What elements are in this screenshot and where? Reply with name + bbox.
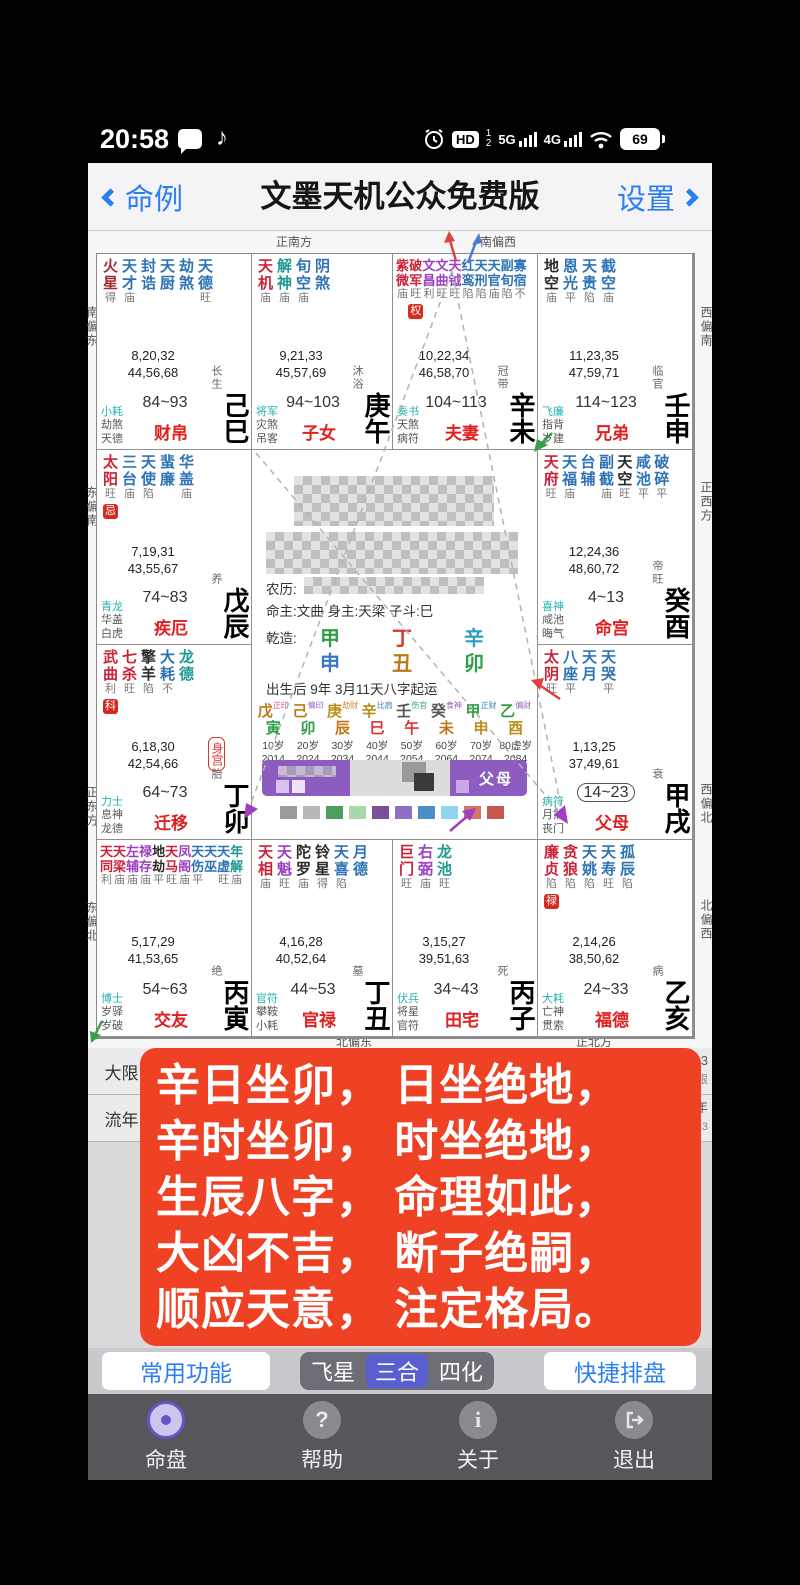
age-numbers: 12,24,3648,60,72: [538, 543, 650, 577]
age-numbers: 10,22,3446,58,70: [393, 347, 495, 381]
star-天德: 天德旺: [197, 259, 214, 305]
star-list: 太阳旺忌三台庙天使陷蜚廉华盖庙: [102, 455, 229, 519]
star-天同: 天同利: [100, 845, 113, 887]
brightness-label: 陷: [476, 288, 487, 301]
stem-branch-label: 辛未: [508, 392, 534, 444]
brightness-label: 陷: [336, 878, 347, 891]
decade-range: 54~63: [125, 981, 205, 999]
brightness-label: 平: [565, 683, 576, 696]
nav-exit[interactable]: 退出: [556, 1394, 712, 1480]
life-stage-label: 帝旺: [649, 560, 665, 586]
life-stage-label: 衰: [649, 768, 665, 781]
age-numbers: 11,23,3547,59,71: [538, 347, 650, 381]
stem-branch-label: 壬申: [663, 392, 689, 444]
star-天厨: 天厨: [159, 259, 176, 305]
common-functions-button[interactable]: 常用功能: [102, 1352, 270, 1390]
star-擎羊: 擎羊陷: [140, 650, 157, 714]
overlay-text-line: 辛日坐卯， 日坐绝地，: [156, 1058, 695, 1114]
star-list: 火星得天才庙封诰天厨劫煞天德旺: [102, 259, 229, 305]
bazi-label: 乾造:: [266, 627, 297, 647]
tab-feixing[interactable]: 飞星: [302, 1354, 364, 1388]
star-文曲: 文曲旺: [436, 259, 449, 319]
decade-selector-bar[interactable]: 父母: [262, 760, 527, 796]
life-stage-label: 墓: [349, 965, 365, 978]
star-地劫: 地劫平: [152, 845, 165, 887]
palace-疾厄[interactable]: 太阳旺忌三台庙天使陷蜚廉华盖庙7,19,3143,55,67养戊辰青龙华盖白虎7…: [97, 450, 251, 644]
star-list: 廉贞陷禄贪狼陷天姚陷天寿旺孤辰陷: [543, 845, 670, 909]
direction-label: 北偏西: [698, 899, 715, 941]
stem-branch-label: 庚午: [363, 392, 389, 444]
age-numbers: 9,21,3345,57,69: [252, 347, 350, 381]
star-恩光: 恩光平: [562, 259, 579, 305]
legend-square: [395, 806, 412, 819]
star-天福: 天福庙: [561, 455, 577, 501]
brightness-label: 旺: [279, 878, 290, 891]
brightness-label: 不: [515, 288, 526, 301]
music-note-icon: ♪: [216, 124, 228, 152]
dayun-branch: 未: [429, 717, 464, 738]
star-铃星: 铃星得: [314, 845, 331, 891]
question-icon: ?: [303, 1401, 341, 1439]
alarm-icon: [423, 128, 445, 150]
brightness-label: 庙: [546, 292, 557, 305]
brightness-label: 旺: [619, 488, 630, 501]
legend-square: [418, 806, 435, 819]
brightness-label: 平: [638, 488, 649, 501]
star-解神: 解神庙: [276, 259, 293, 305]
star-list: 紫微庙破军旺权文昌利文曲旺天钺旺红鸾陷天刑陷天官庙副旬陷寡宿不: [396, 259, 517, 319]
brightness-label: 旺: [218, 874, 229, 887]
star-火星: 火星得: [102, 259, 119, 305]
brightness-label: 庙: [397, 288, 408, 301]
brightness-label: 旺: [105, 488, 116, 501]
decade-range: 44~53: [280, 981, 346, 999]
minor-gods: 官符攀鞍小耗: [256, 993, 278, 1034]
star-天巫: 天巫: [204, 845, 217, 887]
nav-label: 关于: [457, 1444, 499, 1474]
decade-range: 14~23: [566, 784, 646, 802]
brightness-label: 旺: [439, 878, 450, 891]
minor-gods: 力士息神龙德: [101, 796, 123, 837]
palace-name: 交友: [137, 1006, 205, 1031]
age-numbers: 4,16,2840,52,64: [252, 933, 350, 967]
direction-label: 正南方: [276, 233, 312, 250]
star-八座: 八座平: [562, 650, 579, 696]
transform-badge: 忌: [103, 504, 118, 519]
pillar-branch: 申: [308, 647, 352, 676]
star-廉贞: 廉贞陷禄: [543, 845, 560, 909]
age-numbers: 1,13,2537,49,61: [538, 738, 650, 772]
palace-name: 兄弟: [578, 419, 646, 444]
star-副截: 副截庙: [598, 455, 614, 501]
brightness-label: 利: [101, 874, 112, 887]
minor-gods: 奏书天煞病符: [397, 406, 419, 447]
annotation-overlay: 辛日坐卯， 日坐绝地，辛时坐卯， 时坐绝地，生辰八字， 命理如此，大凶不吉， 断…: [140, 1048, 701, 1346]
lunar-date-line: 农历:: [266, 578, 297, 598]
life-stage-label: 冠带: [494, 365, 510, 391]
palace-子女[interactable]: 天机庙解神庙旬空庙阴煞9,21,3345,57,69沐浴庚午将军灾煞吊客94~1…: [252, 254, 392, 449]
brightness-label: 平: [192, 874, 203, 887]
palace-田宅[interactable]: 巨门旺右弼庙龙池旺3,15,2739,51,63死丙子伏兵将星官符34~43田宅: [393, 840, 537, 1036]
direction-label: 正西方: [698, 481, 715, 523]
star-七杀: 七杀旺: [121, 650, 138, 714]
direction-label: 西偏北: [698, 783, 715, 825]
brightness-label: 得: [105, 292, 116, 305]
life-stage-label: 沐浴: [349, 365, 365, 391]
brightness-label: 庙: [260, 878, 271, 891]
age-numbers: 6,18,3042,54,66: [97, 738, 209, 772]
quick-chart-button[interactable]: 快捷排盘: [544, 1352, 696, 1390]
censored-region: [266, 532, 518, 574]
brightness-label: 旺: [437, 288, 448, 301]
brightness-label: 陷: [463, 288, 474, 301]
star-华盖: 华盖庙: [178, 455, 195, 519]
age-numbers: 3,15,2739,51,63: [393, 933, 495, 967]
brightness-label: 陷: [143, 488, 154, 501]
decade-range: 104~113: [421, 394, 491, 412]
star-旬空: 旬空庙: [295, 259, 312, 305]
decade-range: 4~13: [566, 589, 646, 607]
brightness-label: 陷: [565, 878, 576, 891]
brightness-label: 庙: [114, 874, 125, 887]
minor-gods: 大耗亡神贯索: [542, 993, 564, 1034]
minor-gods: 博士岁驿岁破: [101, 993, 123, 1034]
star-天喜: 天喜陷: [333, 845, 350, 891]
star-台辅: 台辅: [580, 455, 596, 501]
palace-兄弟[interactable]: 地空庙恩光平天贵陷截空庙11,23,3547,59,71临官壬申飞廉指背岁建11…: [538, 254, 692, 449]
minor-gods: 小耗劫煞天德: [101, 406, 123, 447]
life-stage-label: 死: [494, 965, 510, 978]
transform-badge: 科: [103, 699, 118, 714]
brightness-label: 庙: [181, 488, 192, 501]
brightness-label: 庙: [601, 488, 612, 501]
stem-branch-label: 癸酉: [663, 587, 689, 639]
minor-gods: 青龙华盖白虎: [101, 601, 123, 642]
brightness-label: 不: [162, 683, 173, 696]
palace-父母[interactable]: 太阴旺八座平天月天哭平1,13,2537,49,61衰甲戌病符月煞丧门14~23…: [538, 645, 692, 839]
palace-name: 夫妻: [433, 419, 491, 444]
star-巨门: 巨门旺: [398, 845, 415, 891]
brightness-label: 得: [317, 878, 328, 891]
bottom-toolbar: 常用功能 飞星 三合 四化 快捷排盘: [88, 1348, 712, 1394]
brightness-label: 庙: [140, 874, 151, 887]
legend-square: [487, 806, 504, 819]
brightness-label: 庙: [127, 874, 138, 887]
brightness-label: 平: [603, 683, 614, 696]
star-年解: 年解庙: [230, 845, 243, 887]
brightness-label: 旺: [546, 683, 557, 696]
star-红鸾: 红鸾陷: [462, 259, 475, 319]
overlay-text-line: 大凶不吉， 断子绝嗣，: [156, 1226, 695, 1282]
dual-sim-index: 12: [486, 129, 492, 149]
brightness-label: 陷: [546, 878, 557, 891]
tab-sihua[interactable]: 四化: [430, 1354, 492, 1388]
legend-square: [303, 806, 320, 819]
brightness-label: 陷: [584, 878, 595, 891]
brightness-label: 陷: [622, 878, 633, 891]
decade-range: 24~33: [566, 981, 646, 999]
legend-square: [441, 806, 458, 819]
brightness-label: 平: [153, 874, 164, 887]
transform-badge: 禄: [544, 894, 559, 909]
nav-label: 帮助: [301, 1444, 343, 1474]
decade-range: 64~73: [125, 784, 205, 802]
star-龙池: 龙池旺: [436, 845, 453, 891]
decade-range: 94~103: [280, 394, 346, 412]
star-list: 天同利天梁庙左辅庙禄存庙地劫平天马旺凤阁庙天伤平天巫天虚旺年解庙: [100, 845, 231, 887]
pillar-branch: 卯: [452, 647, 496, 676]
star-list: 巨门旺右弼庙龙池旺: [398, 845, 515, 891]
dayun-branch: 酉: [498, 717, 533, 738]
star-贪狼: 贪狼陷: [562, 845, 579, 909]
palace-交友[interactable]: 天同利天梁庙左辅庙禄存庙地劫平天马旺凤阁庙天伤平天巫天虚旺年解庙5,17,294…: [97, 840, 251, 1036]
star-禄存: 禄存庙: [139, 845, 152, 887]
palace-name: 官禄: [292, 1006, 346, 1031]
life-stage-label: 长生: [208, 365, 224, 391]
info-icon: i: [459, 1401, 497, 1439]
star-副旬: 副旬陷: [501, 259, 514, 319]
stem-branch-label: 丙子: [508, 979, 534, 1031]
pillar-branch: 丑: [380, 647, 424, 676]
overlay-text-line: 辛时坐卯， 时坐绝地，: [156, 1114, 695, 1170]
palace-name: 子女: [292, 419, 346, 444]
star-咸池: 咸池平: [635, 455, 651, 501]
star-月德: 月德: [352, 845, 369, 891]
stem-branch-label: 戊辰: [222, 587, 248, 639]
selector-palace-label: 父母: [479, 768, 513, 789]
settings-button[interactable]: 设置: [617, 163, 696, 231]
brightness-label: 平: [656, 488, 667, 501]
legend-square: [464, 806, 481, 819]
nav-help[interactable]: ? 帮助: [244, 1394, 400, 1480]
age-numbers: 7,19,3143,55,67: [97, 543, 209, 577]
transform-badge: 权: [408, 304, 423, 319]
stem-branch-label: 己巳: [222, 392, 248, 444]
brightness-label: 庙: [298, 292, 309, 305]
life-stage-label: 养: [208, 573, 224, 586]
decade-range: 34~43: [421, 981, 491, 999]
school-segmented-control: 飞星 三合 四化: [300, 1352, 494, 1390]
nav-chart[interactable]: 命盘: [88, 1394, 244, 1480]
selector-block: [456, 780, 469, 793]
qiyun-line: 出生后 9年 3月11天八字起运: [266, 678, 438, 698]
chart-grid: 农历: 命主:文曲 身主:天梁 子斗:巳 乾造: 甲丁辛辛 申丑卯卯 出生后 9…: [96, 253, 695, 1039]
decade-range: 114~123: [566, 394, 646, 412]
age-numbers: 8,20,3244,56,68: [97, 347, 209, 381]
age-numbers: 5,17,2941,53,65: [97, 933, 209, 967]
palace-官禄[interactable]: 天相庙天魁旺陀罗庙铃星得天喜陷月德4,16,2840,52,64墓丁丑官符攀鞍小…: [252, 840, 392, 1036]
star-三台: 三台庙: [121, 455, 138, 519]
selector-block: [292, 780, 305, 793]
star-文昌: 文昌利: [423, 259, 436, 319]
palace-name: 福德: [578, 1006, 646, 1031]
direction-label: 西偏南: [698, 306, 715, 348]
brightness-label: 利: [105, 683, 116, 696]
star-地空: 地空庙: [543, 259, 560, 305]
star-劫煞: 劫煞: [178, 259, 195, 305]
star-右弼: 右弼庙: [417, 845, 434, 891]
star-天马: 天马旺: [165, 845, 178, 887]
star-天虚: 天虚旺: [217, 845, 230, 887]
stem-branch-label: 丁卯: [222, 782, 248, 834]
brightness-label: 旺: [603, 878, 614, 891]
star-孤辰: 孤辰陷: [619, 845, 636, 909]
star-大耗: 大耗不: [159, 650, 176, 714]
star-太阴: 太阴旺: [543, 650, 560, 696]
star-凤阁: 凤阁庙: [178, 845, 191, 887]
stem-branch-label: 丁丑: [363, 979, 389, 1031]
censored-region: [278, 766, 336, 777]
brightness-label: 旺: [401, 878, 412, 891]
palace-name: 财帛: [137, 419, 205, 444]
star-list: 地空庙恩光平天贵陷截空庙: [543, 259, 670, 305]
star-天才: 天才庙: [121, 259, 138, 305]
censored-region: [350, 760, 450, 796]
brightness-label: 庙: [260, 292, 271, 305]
flow-color-legend: [280, 806, 504, 819]
pillar-branch: 卯: [524, 647, 537, 676]
battery-icon: 69: [620, 128, 660, 150]
brightness-label: 庙: [124, 292, 135, 305]
star-天官: 天官庙: [488, 259, 501, 319]
star-陀罗: 陀罗庙: [295, 845, 312, 891]
tab-sanhe[interactable]: 三合: [366, 1354, 428, 1388]
brightness-label: 利: [424, 288, 435, 301]
sim2-signal-icon: 4G: [544, 131, 582, 147]
star-寡宿: 寡宿不: [514, 259, 527, 319]
life-stage-label: 病: [649, 965, 665, 978]
direction-label: 南偏西: [480, 233, 516, 250]
star-武曲: 武曲利科: [102, 650, 119, 714]
life-stage-label: 临官: [649, 365, 665, 391]
dayun-branch: 卯: [291, 717, 326, 738]
chart-center-info: 农历: 命主:文曲 身主:天梁 子斗:巳 乾造: 甲丁辛辛 申丑卯卯 出生后 9…: [252, 450, 537, 839]
selector-block: [276, 780, 289, 793]
body-palace-badge: 身宫: [208, 737, 225, 771]
star-list: 太阴旺八座平天月天哭平: [543, 650, 670, 696]
wifi-icon: [589, 130, 613, 149]
brightness-label: 庙: [420, 878, 431, 891]
censored-region: [304, 577, 484, 594]
minor-gods: 飞廉指背岁建: [542, 406, 564, 447]
overlay-text-line: 生辰八字， 命理如此，: [156, 1170, 695, 1226]
star-天钺: 天钺旺: [449, 259, 462, 319]
brightness-label: 旺: [124, 683, 135, 696]
brightness-label: 陷: [143, 683, 154, 696]
phone-screen: 20:58 ♪ HD 12 5G 4G 69 命例 文墨天机公众免: [0, 0, 800, 1585]
decade-range: 74~83: [125, 589, 205, 607]
stem-branch-label: 乙亥: [663, 979, 689, 1031]
palace-name: 疾厄: [137, 614, 205, 639]
dayun-branches: 寅卯辰巳午未申酉: [256, 717, 533, 738]
star-list: 武曲利科七杀旺擎羊陷大耗不龙德: [102, 650, 229, 714]
life-stage-label: 绝: [208, 965, 224, 978]
brightness-label: 陷: [584, 292, 595, 305]
star-天月: 天月: [581, 650, 598, 696]
star-天姚: 天姚陷: [581, 845, 598, 909]
palace-name: 田宅: [433, 1006, 491, 1031]
star-龙德: 龙德: [178, 650, 195, 714]
palace-name: 迁移: [137, 809, 205, 834]
palace-命宫[interactable]: 天府旺天福庙台辅副截庙天空旺咸池平破碎平12,24,3648,60,72帝旺癸酉…: [538, 450, 692, 644]
decade-range: 84~93: [125, 394, 205, 412]
palace-迁移[interactable]: 武曲利科七杀旺擎羊陷大耗不龙德6,18,3042,54,66胎丁卯力士息神龙德6…: [97, 645, 251, 839]
palace-name: 父母: [578, 809, 646, 834]
star-天贵: 天贵陷: [581, 259, 598, 305]
brightness-label: 平: [565, 292, 576, 305]
hd-call-icon: HD: [452, 131, 479, 148]
palace-name: 命宫: [578, 614, 646, 639]
dayun-branch: 申: [464, 717, 499, 738]
brightness-label: 庙: [603, 292, 614, 305]
sim1-signal-icon: 5G: [498, 131, 536, 147]
star-破碎: 破碎平: [654, 455, 670, 501]
life-masters-line: 命主:文曲 身主:天梁 子斗:巳: [266, 600, 433, 620]
star-阴煞: 阴煞: [314, 259, 331, 305]
brightness-label: 庙: [489, 288, 500, 301]
chart-disc-icon: [147, 1401, 185, 1439]
stem-branch-label: 甲戌: [663, 782, 689, 834]
app-header: 命例 文墨天机公众免费版 设置: [88, 163, 712, 231]
censored-region: [294, 476, 494, 526]
palace-财帛[interactable]: 火星得天才庙封诰天厨劫煞天德旺8,20,3244,56,68长生己巳小耗劫煞天德…: [97, 254, 251, 449]
chevron-right-icon: [680, 188, 698, 206]
star-蜚廉: 蜚廉: [159, 455, 176, 519]
star-list: 天府旺天福庙台辅副截庙天空旺咸池平破碎平: [543, 455, 670, 501]
nav-label: 命盘: [145, 1444, 187, 1474]
legend-square: [349, 806, 366, 819]
natal-chart: 正南方 南偏西 南偏东 东偏南 正东方 东偏北 西偏南 正西方 西偏北 北偏西 …: [88, 231, 712, 1048]
minor-gods: 病符月煞丧门: [542, 796, 564, 837]
dayun-branch: 寅: [256, 717, 291, 738]
brightness-label: 庙: [179, 874, 190, 887]
brightness-label: 庙: [298, 878, 309, 891]
palace-福德[interactable]: 廉贞陷禄贪狼陷天姚陷天寿旺孤辰陷2,14,2638,50,62病乙亥大耗亡神贯索…: [538, 840, 692, 1036]
exit-icon: [615, 1401, 653, 1439]
star-天刑: 天刑陷: [475, 259, 488, 319]
message-icon: [178, 129, 202, 149]
star-天府: 天府旺: [543, 455, 559, 501]
brightness-label: 旺: [546, 488, 557, 501]
brightness-label: 庙: [124, 488, 135, 501]
overlay-text-line: 顺应天意， 注定格局。: [156, 1282, 695, 1338]
brightness-label: 旺: [410, 288, 421, 301]
star-天寿: 天寿旺: [600, 845, 617, 909]
legend-square: [372, 806, 389, 819]
star-截空: 截空庙: [600, 259, 617, 305]
star-天伤: 天伤平: [191, 845, 204, 887]
stem-branch-label: 丙寅: [222, 979, 248, 1031]
star-list: 天机庙解神庙旬空庙阴煞: [257, 259, 370, 305]
star-左辅: 左辅庙: [126, 845, 139, 887]
star-天魁: 天魁旺: [276, 845, 293, 891]
age-numbers: 2,14,2638,50,62: [538, 933, 650, 967]
dayun-branch: 巳: [360, 717, 395, 738]
nav-about[interactable]: i 关于: [400, 1394, 556, 1480]
star-天使: 天使陷: [140, 455, 157, 519]
star-天机: 天机庙: [257, 259, 274, 305]
dayun-branch: 辰: [325, 717, 360, 738]
star-封诰: 封诰: [140, 259, 157, 305]
brightness-label: 庙: [564, 488, 575, 501]
brightness-label: 庙: [231, 874, 242, 887]
star-天哭: 天哭平: [600, 650, 617, 696]
brightness-label: 旺: [450, 288, 461, 301]
palace-夫妻[interactable]: 紫微庙破军旺权文昌利文曲旺天钺旺红鸾陷天刑陷天官庙副旬陷寡宿不10,22,344…: [393, 254, 537, 449]
legend-square: [326, 806, 343, 819]
brightness-label: 陷: [502, 288, 513, 301]
minor-gods: 喜神咸池晦气: [542, 601, 564, 642]
